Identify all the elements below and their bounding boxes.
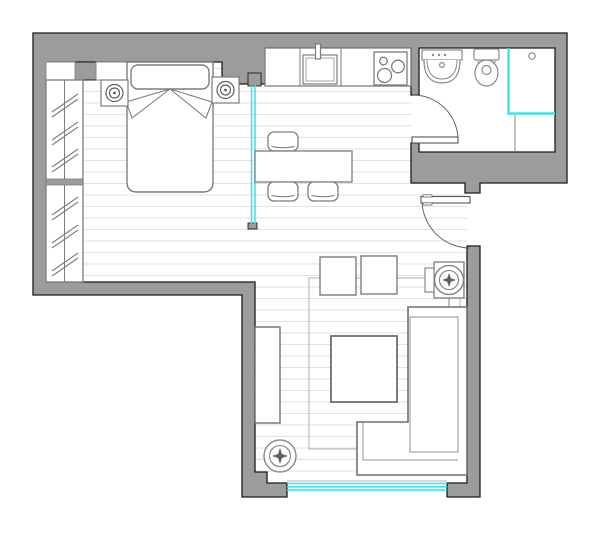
entry-door-handle <box>423 195 432 197</box>
bathroom-door-swing-arc <box>413 95 458 140</box>
dining-chair-bottom-right <box>308 182 338 201</box>
nightstand-right <box>212 77 239 103</box>
living-room-window <box>287 484 447 491</box>
dining-table <box>255 151 352 182</box>
toilet-bowl <box>475 60 498 86</box>
nightstand-left <box>101 80 128 106</box>
dining-chair-bottom-left <box>268 182 298 201</box>
low-cabinet <box>255 327 280 423</box>
washbasin-vanity <box>422 50 462 83</box>
entry-door-hinge <box>423 203 432 205</box>
floor-lamp <box>264 440 296 472</box>
shower-glass-screen <box>508 48 556 114</box>
floor-plan-canvas <box>0 0 600 536</box>
pouf-left <box>320 257 356 295</box>
sliding-wardrobe <box>46 80 83 282</box>
shower-head <box>529 53 535 59</box>
partition-mount-top <box>248 73 261 86</box>
toilet <box>474 49 499 86</box>
coffee-table <box>331 336 397 402</box>
bathroom-door-leaf <box>412 137 458 143</box>
entry-door-leaf <box>421 197 470 204</box>
faucet <box>316 44 321 59</box>
cooktop <box>374 52 407 85</box>
dining-chair-top <box>268 132 298 151</box>
bathroom-door <box>412 95 458 143</box>
pillow-headboard <box>131 65 209 89</box>
kitchen <box>265 44 411 86</box>
wall-niche-left <box>46 62 75 80</box>
wall-pilaster-bed-left <box>75 62 96 80</box>
toilet-tank <box>474 49 499 60</box>
double-bed <box>126 62 213 192</box>
wall-niche-right <box>96 62 127 80</box>
pouf-right <box>361 256 397 294</box>
side-table <box>425 268 434 292</box>
